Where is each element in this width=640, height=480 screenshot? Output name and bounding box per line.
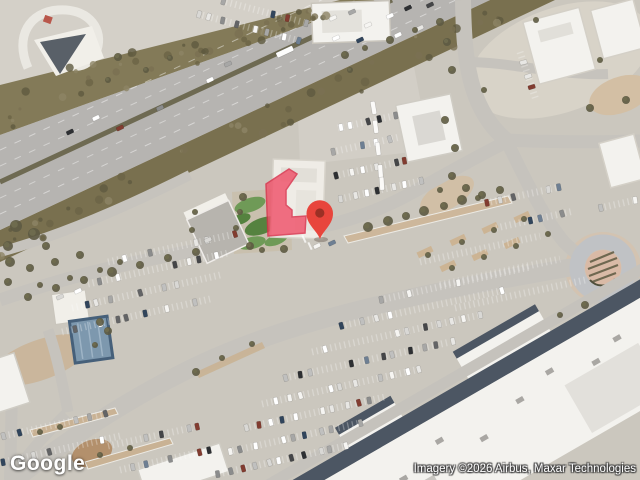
tree [192, 368, 200, 376]
car [360, 141, 365, 149]
tree [192, 209, 198, 215]
tree [280, 245, 288, 253]
tree [51, 258, 59, 266]
tree [481, 254, 487, 260]
tree [459, 239, 465, 245]
tree [26, 264, 34, 272]
tree [117, 259, 123, 265]
car [381, 353, 386, 361]
car [402, 181, 407, 189]
tree [143, 67, 149, 73]
car [391, 183, 396, 191]
tree [412, 27, 418, 33]
car [193, 239, 198, 247]
tree [37, 282, 43, 288]
car [345, 401, 350, 409]
tree [341, 51, 349, 59]
tree [437, 187, 443, 193]
tree [581, 301, 589, 309]
tree [3, 241, 13, 251]
tree [622, 96, 630, 104]
tree [233, 225, 239, 231]
tree [189, 227, 195, 233]
car [143, 434, 148, 442]
car [115, 316, 120, 324]
car [338, 195, 343, 203]
tree [457, 195, 467, 205]
tree [513, 243, 519, 249]
tree [67, 275, 73, 281]
car [285, 14, 290, 22]
tree [448, 172, 456, 180]
tree [96, 318, 104, 326]
car [456, 279, 461, 287]
tree [451, 144, 459, 152]
tree [167, 55, 173, 61]
tree [347, 67, 353, 73]
car [162, 284, 167, 292]
car [256, 421, 261, 429]
tree [107, 267, 117, 277]
car [378, 165, 383, 178]
tree [440, 202, 448, 210]
car [108, 296, 113, 304]
car [329, 426, 334, 434]
map-attribution: Imagery ©2026 Airbus, Maxar Technologies [414, 463, 636, 475]
tree [104, 327, 112, 335]
tree [249, 341, 255, 347]
car [298, 371, 303, 379]
car [253, 442, 258, 450]
tree [402, 212, 410, 220]
marker-shadow [314, 237, 328, 242]
car [279, 416, 284, 424]
car [408, 347, 413, 355]
car [215, 470, 220, 478]
tree [10, 220, 22, 232]
satellite-map-canvas[interactable] [0, 0, 640, 480]
car [302, 431, 307, 439]
tree [52, 284, 60, 292]
tree [425, 252, 431, 258]
tree [533, 17, 539, 23]
tree [363, 222, 373, 232]
tree [597, 57, 603, 63]
tree [127, 445, 133, 451]
tree [481, 87, 487, 93]
car [379, 177, 384, 190]
car [308, 369, 313, 377]
tree [76, 251, 84, 259]
tree [462, 184, 470, 192]
car [99, 436, 104, 444]
car [422, 344, 427, 352]
tree [5, 257, 15, 267]
car [338, 123, 343, 131]
tree [521, 216, 527, 222]
tree [237, 209, 243, 215]
tree [443, 38, 451, 46]
tree [80, 276, 88, 284]
tree [92, 342, 98, 348]
tree [114, 53, 122, 61]
tree [449, 265, 455, 271]
tree [239, 193, 247, 201]
tree [97, 452, 103, 458]
tree [545, 231, 551, 237]
car [433, 341, 438, 349]
tree [105, 77, 111, 83]
tree [246, 242, 254, 250]
google-logo[interactable]: Google [10, 452, 85, 476]
tree [491, 227, 497, 233]
tree [136, 261, 144, 269]
tree [37, 429, 43, 435]
tree [475, 195, 481, 201]
car [130, 463, 135, 471]
tree [192, 248, 200, 256]
tree [164, 254, 172, 262]
tree [436, 18, 444, 26]
tree [586, 104, 594, 112]
car [360, 166, 365, 174]
tree [42, 242, 50, 250]
car [347, 122, 352, 130]
car [423, 323, 428, 331]
map-viewport[interactable]: Google Imagery ©2026 Airbus, Maxar Techn… [0, 0, 640, 480]
tree [386, 36, 394, 44]
tree [557, 312, 563, 318]
car [366, 397, 371, 405]
car [393, 112, 398, 120]
marker-dot [315, 208, 324, 217]
tree [496, 186, 504, 194]
tree [4, 278, 12, 286]
tree [97, 267, 103, 273]
car [174, 281, 179, 289]
tree [441, 116, 449, 124]
car [364, 189, 369, 197]
tree [57, 424, 63, 430]
tree [419, 206, 429, 216]
tree [259, 247, 265, 253]
tree [24, 293, 32, 301]
car [187, 424, 192, 432]
car [546, 186, 551, 194]
tree [219, 355, 225, 361]
tree [383, 216, 393, 226]
tree [28, 228, 40, 240]
car [159, 430, 164, 438]
tree [448, 66, 456, 74]
tree [362, 45, 368, 51]
car [633, 196, 638, 204]
car [293, 413, 298, 421]
